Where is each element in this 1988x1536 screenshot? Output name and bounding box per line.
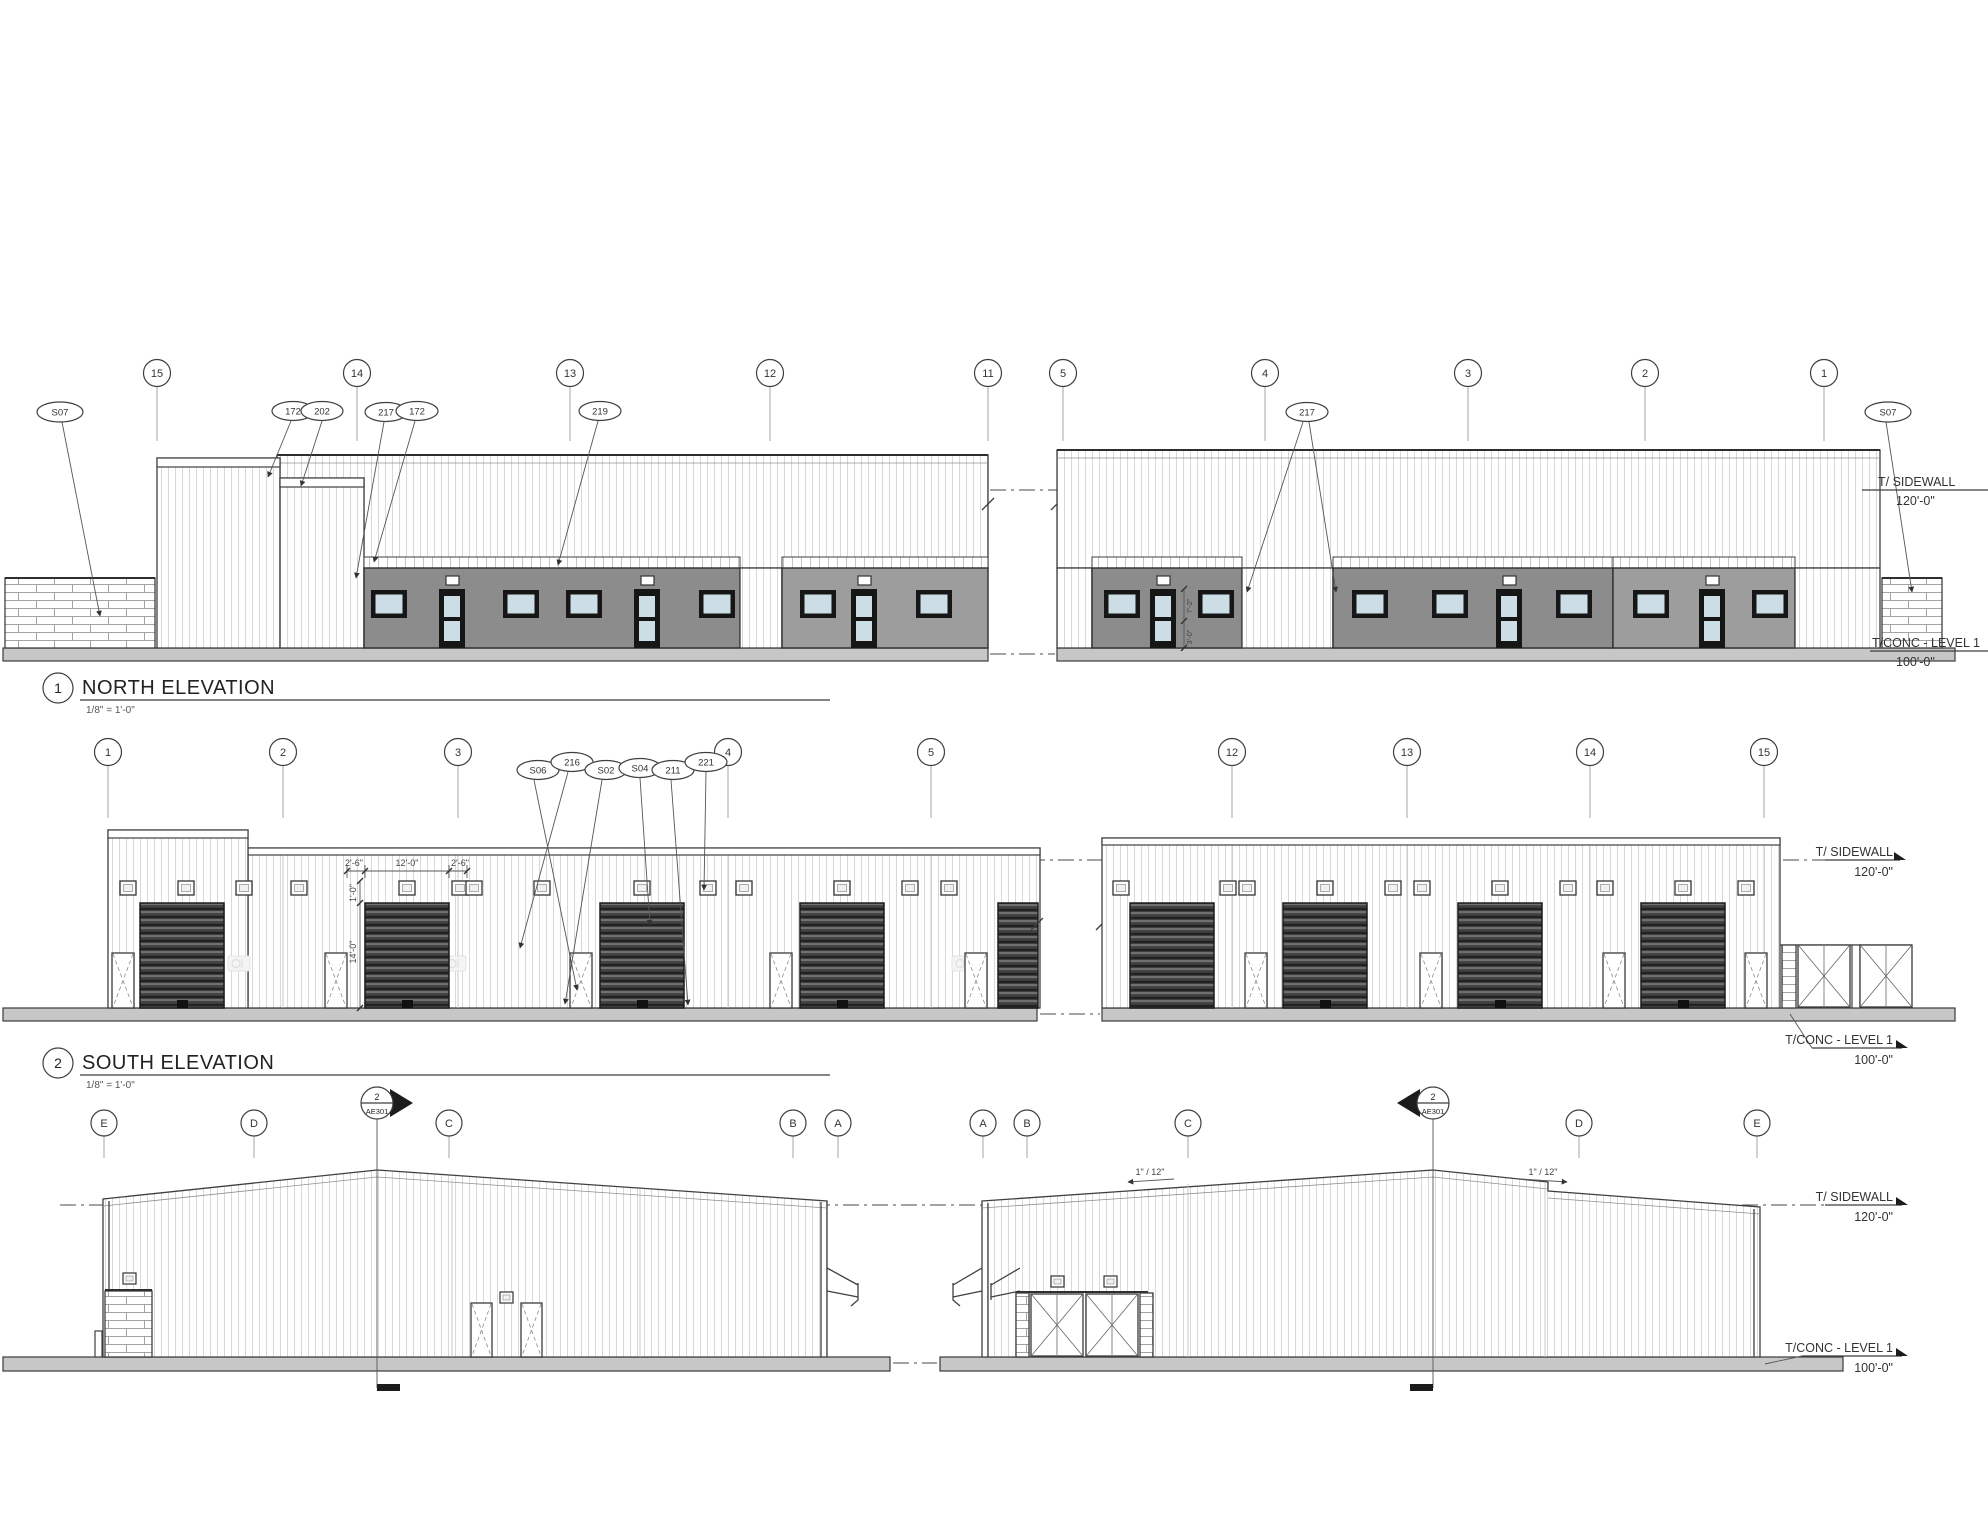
section-sheet: AE301: [366, 1107, 389, 1116]
grid-bubble: D: [1566, 1110, 1592, 1158]
clerestory-window: [1239, 881, 1255, 895]
grid-bubble: 4: [1252, 360, 1279, 442]
dim-text: 2'-6": [451, 858, 469, 868]
clerestory-window: [1414, 881, 1430, 895]
section-number: 2: [374, 1092, 379, 1102]
overhead-door: [998, 903, 1038, 1008]
grid-bubble: E: [1744, 1110, 1770, 1158]
clerestory-window: [700, 881, 716, 895]
canopy-bracket: [827, 1268, 858, 1306]
view-scale: 1/8" = 1'-0": [86, 705, 135, 716]
grid-bubble: A: [970, 1110, 996, 1158]
view-number: 2: [54, 1055, 62, 1071]
gate-panel: [1798, 945, 1850, 1007]
man-door: [770, 953, 792, 1008]
tall-mass: [157, 458, 280, 648]
grid-label: E: [100, 1118, 107, 1130]
grid-label: 3: [1465, 368, 1471, 380]
end-wall: [103, 1170, 827, 1357]
clerestory-window: [1738, 881, 1754, 895]
grid-bubble: 2: [1632, 360, 1659, 442]
view-title: SOUTH ELEVATION: [82, 1052, 274, 1074]
clerestory-window: [466, 881, 482, 895]
grid-label: 11: [982, 368, 993, 380]
storefront-wall: [364, 568, 740, 648]
roof-slope-annotation: 1" / 12": [1521, 1167, 1567, 1182]
ground-band: [1102, 1008, 1955, 1021]
keynote-label: 211: [665, 766, 680, 777]
keynote-label: 172: [285, 407, 301, 418]
grid-label: 12: [1226, 747, 1238, 759]
man-door: [1745, 953, 1767, 1008]
grid-label: 5: [1060, 368, 1066, 380]
level-annotation-sidewall: T/ SIDEWALL 120'-0": [1862, 475, 1988, 508]
grid-label: C: [445, 1118, 453, 1130]
level-elevation: 100'-0": [1854, 1361, 1893, 1375]
man-door: [1420, 953, 1442, 1008]
overhead-door: [140, 903, 224, 1008]
grid-label: 2: [1642, 368, 1648, 380]
clerestory-window: [1597, 881, 1613, 895]
keynote-label: S02: [598, 766, 615, 777]
ground-band: [3, 1008, 1037, 1021]
keynote-label: 217: [1299, 408, 1315, 419]
canopy-fascia: [364, 557, 740, 568]
keynote-label: 217: [378, 408, 394, 419]
level-label: T/ SIDEWALL: [1878, 475, 1955, 489]
entry-door: [1496, 589, 1522, 648]
grid-bubble: B: [1014, 1110, 1040, 1158]
overhead-door: [1458, 903, 1542, 1008]
grid-label: 4: [1262, 368, 1268, 380]
grid-label: 14: [351, 368, 363, 380]
entry-door: [439, 589, 465, 648]
small-window: [500, 1292, 513, 1303]
dim-text: 3'-0": [1185, 629, 1194, 644]
siding-pilaster: [1242, 568, 1333, 648]
door-light: [1706, 576, 1719, 585]
level-elevation: 120'-0": [1854, 865, 1893, 879]
clerestory-window: [236, 881, 252, 895]
overhead-door: [1130, 903, 1214, 1008]
grid-label: C: [1184, 1118, 1192, 1130]
canopy-fascia: [1092, 557, 1242, 568]
keynote-label: S07: [1880, 408, 1897, 419]
view-title-south: 2 SOUTH ELEVATION 1/8" = 1'-0": [43, 1048, 830, 1091]
keynote-label: 216: [564, 758, 580, 769]
overhead-door: [600, 903, 684, 1008]
dim-text: 1'-0": [348, 884, 358, 902]
canopy-fascia: [1613, 557, 1795, 568]
grid-label: 14: [1584, 747, 1596, 759]
level-label: T/CONC - LEVEL 1: [1785, 1341, 1893, 1355]
window: [1633, 590, 1669, 618]
roof-slope-annotation: 1" / 12": [1128, 1167, 1174, 1182]
door-light: [446, 576, 459, 585]
grid-label: D: [250, 1118, 258, 1130]
ground-band: [3, 648, 988, 661]
clerestory-window: [1220, 881, 1236, 895]
grid-label: 5: [928, 747, 934, 759]
grid-bubble: 3: [445, 739, 472, 819]
end-elevations: E D C B A A B C D E 2 AE301 2 AE301: [3, 1087, 1908, 1391]
grid-label: A: [834, 1118, 842, 1130]
level-annotation-conc: T/CONC - LEVEL 1 100'-0": [1785, 1014, 1908, 1067]
ground-band: [3, 1357, 890, 1371]
brick-wainscot: [105, 1291, 152, 1357]
man-door: [112, 953, 134, 1008]
section-flag: [1410, 1384, 1433, 1391]
grid-label: D: [1575, 1118, 1583, 1130]
man-door: [965, 953, 987, 1008]
site-gate: [1780, 945, 1912, 1008]
section-marker: 2 AE301: [361, 1087, 413, 1119]
grid-bubble: E: [91, 1110, 117, 1158]
grid-bubble: 14: [1577, 739, 1604, 819]
entry-door: [1699, 589, 1725, 648]
clerestory-window: [399, 881, 415, 895]
clerestory-window: [1317, 881, 1333, 895]
parapet-band: [1057, 450, 1880, 568]
grid-bubble: A: [825, 1110, 851, 1158]
window: [1104, 590, 1140, 618]
grid-bubble: C: [1175, 1110, 1201, 1158]
door-light: [858, 576, 871, 585]
overhead-door: [365, 903, 449, 1008]
grid-bubble: 13: [1394, 739, 1421, 819]
stepped-mass: [280, 478, 364, 648]
clerestory-window: [1675, 881, 1691, 895]
canopy-fascia: [1333, 557, 1613, 568]
window: [503, 590, 539, 618]
grid-bubble: 12: [1219, 739, 1246, 819]
level-elevation: 120'-0": [1854, 1210, 1893, 1224]
view-title: NORTH ELEVATION: [82, 677, 275, 699]
door-panel: [1086, 1294, 1138, 1356]
grid-bubble: 14: [344, 360, 371, 442]
view-number: 1: [54, 680, 62, 696]
grid-bubble: B: [780, 1110, 806, 1158]
grid-label: 2: [280, 747, 286, 759]
grid-bubble: 1: [1811, 360, 1838, 442]
clerestory-window: [902, 881, 918, 895]
grid-label: 13: [1401, 747, 1413, 759]
section-number: 2: [1430, 1092, 1435, 1102]
keynote-label: S06: [530, 766, 547, 777]
door-light: [1157, 576, 1170, 585]
grid-label: E: [1753, 1118, 1760, 1130]
grid-bubble: 3: [1455, 360, 1482, 442]
clerestory-window: [941, 881, 957, 895]
small-window: [1104, 1276, 1117, 1287]
overhead-door: [1641, 903, 1725, 1008]
level-label: T/ SIDEWALL: [1816, 845, 1893, 859]
clerestory-window: [1385, 881, 1401, 895]
grid-label: B: [1023, 1118, 1030, 1130]
grid-bubble: 12: [757, 360, 784, 442]
level-elevation: 100'-0": [1854, 1053, 1893, 1067]
grid-bubble: 15: [1751, 739, 1778, 819]
dim-text: 7'-2": [1185, 598, 1194, 613]
keynote-label: 172: [409, 407, 425, 418]
window: [1352, 590, 1388, 618]
dim-text: 2'-6": [345, 858, 363, 868]
keynote-label: S04: [632, 764, 649, 775]
level-annotation-sidewall: T/ SIDEWALL 120'-0": [1816, 845, 1906, 879]
window: [1752, 590, 1788, 618]
grid-bubble: C: [436, 1110, 462, 1158]
elevations-canvas: 15 14 13 12 11 5 4 3 2 1: [0, 0, 1988, 1536]
small-window: [123, 1273, 136, 1284]
slope-text: 1" / 12": [1529, 1167, 1558, 1177]
door-light: [641, 576, 654, 585]
north-elevation: 15 14 13 12 11 5 4 3 2 1: [3, 360, 1988, 717]
grid-label: B: [789, 1118, 796, 1130]
level-label: T/CONC - LEVEL 1: [1785, 1033, 1893, 1047]
ground-band: [940, 1357, 1843, 1371]
clerestory-window: [736, 881, 752, 895]
level-annotation-sidewall: T/ SIDEWALL 120'-0": [1816, 1190, 1908, 1224]
south-elevation: 1 2 3 4 5 12 13 14 15 2'-6" 12'-0" 2'-: [3, 739, 1955, 1092]
small-window: [1051, 1276, 1064, 1287]
section-flag: [377, 1384, 400, 1391]
dim-text: 14'-0": [348, 941, 358, 964]
grid-label: 1: [1821, 368, 1827, 380]
door-panel: [1031, 1294, 1083, 1356]
grid-label: 15: [1758, 747, 1770, 759]
grid-bubble: 2: [270, 739, 297, 819]
clerestory-window: [1113, 881, 1129, 895]
view-scale: 1/8" = 1'-0": [86, 1080, 135, 1091]
man-door: [325, 953, 347, 1008]
siding-pilaster: [740, 568, 782, 648]
grid-bubble: 4: [715, 739, 742, 819]
slope-text: 1" / 12": [1136, 1167, 1165, 1177]
clerestory-window: [1560, 881, 1576, 895]
grid-bubble: 13: [557, 360, 584, 442]
grid-label: 12: [764, 368, 776, 380]
grid-label: 1: [105, 747, 111, 759]
grid-label: 15: [151, 368, 163, 380]
grid-bubble: 15: [144, 360, 171, 442]
man-door: [1603, 953, 1625, 1008]
man-door: [521, 1303, 542, 1357]
elevation-drawing-sheet: 15 14 13 12 11 5 4 3 2 1: [0, 0, 1988, 1536]
grid-bubbles-end-left: E D C B A: [91, 1110, 851, 1158]
level-label: T/ SIDEWALL: [1816, 1190, 1893, 1204]
overhead-door: [1283, 903, 1367, 1008]
clerestory-window: [120, 881, 136, 895]
section-marker: 2 AE301: [1397, 1087, 1449, 1119]
window: [800, 590, 836, 618]
grid-label: 3: [455, 747, 461, 759]
keynote-label: S07: [52, 408, 69, 419]
level-elevation: 100'-0": [1896, 655, 1935, 669]
parapet-band: [277, 455, 988, 568]
grid-bubbles-south: 1 2 3 4 5 12 13 14 15: [95, 739, 1778, 819]
window: [1198, 590, 1234, 618]
keynote-label: 202: [314, 407, 330, 418]
ground-band: [1057, 648, 1955, 661]
canopy-fascia: [782, 557, 988, 568]
grid-bubbles-end-right: A B C D E: [970, 1110, 1770, 1158]
grid-label: 13: [564, 368, 576, 380]
keynote-label: 221: [698, 758, 714, 769]
window: [916, 590, 952, 618]
man-door: [471, 1303, 492, 1357]
entry-door: [634, 589, 660, 648]
overhead-door: [800, 903, 884, 1008]
clerestory-window: [178, 881, 194, 895]
section-sheet: AE301: [1422, 1107, 1445, 1116]
keynote-label: 219: [592, 407, 608, 418]
window: [371, 590, 407, 618]
grid-bubble: 11: [975, 360, 1002, 442]
grid-bubbles-north: 15 14 13 12 11 5 4 3 2 1: [144, 360, 1838, 442]
entry-door: [851, 589, 877, 648]
gate-panel: [1860, 945, 1912, 1007]
entry-door: [1150, 589, 1176, 648]
clerestory-window: [834, 881, 850, 895]
grid-bubble: 1: [95, 739, 122, 819]
window: [1556, 590, 1592, 618]
grid-bubble: 5: [1050, 360, 1077, 442]
grid-bubble: 5: [918, 739, 945, 819]
level-label: T/CONC - LEVEL 1: [1872, 636, 1980, 650]
man-door: [570, 953, 592, 1008]
clerestory-window: [1492, 881, 1508, 895]
window: [1432, 590, 1468, 618]
man-door: [1245, 953, 1267, 1008]
window: [566, 590, 602, 618]
window: [699, 590, 735, 618]
clerestory-window: [291, 881, 307, 895]
grid-label: 4: [725, 747, 731, 759]
level-elevation: 120'-0": [1896, 494, 1935, 508]
view-title-north: 1 NORTH ELEVATION 1/8" = 1'-0": [43, 673, 830, 716]
grid-bubble: D: [241, 1110, 267, 1158]
dim-text: 12'-0": [396, 858, 419, 868]
cmu-site-wall: [5, 578, 155, 648]
grid-label: A: [979, 1118, 987, 1130]
door-light: [1503, 576, 1516, 585]
